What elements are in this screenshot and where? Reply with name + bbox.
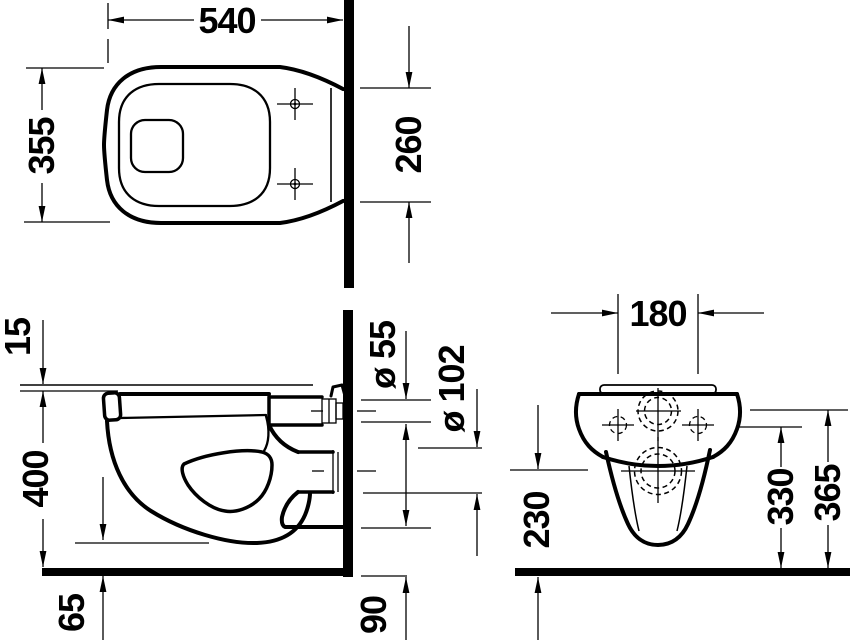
inlet-stub: [336, 403, 343, 419]
body-right-edge: [713, 394, 740, 457]
side-view: 15 400 65 ø 55 ø 102: [0, 310, 482, 640]
plan-view: 540 355 260: [21, 0, 431, 288]
outlet-arm-underside: [282, 492, 343, 527]
dim-inlet-diameter: ø 55: [361, 320, 431, 526]
dim-label: 365: [807, 463, 848, 521]
dim-fixing-hole-spacing: 180: [551, 293, 764, 374]
dim-bottom-clearance: 65: [51, 477, 209, 640]
dim-label: 400: [15, 450, 56, 507]
mounting-hole: [277, 88, 313, 120]
drain-opening: [131, 120, 183, 172]
dim-wall-width: 260: [360, 26, 431, 263]
dim-label: 355: [21, 116, 62, 174]
shroud-inner-line: [629, 466, 639, 531]
dim-label: 540: [198, 0, 255, 41]
dim-plan-depth: 355: [21, 68, 110, 222]
drawing-canvas: 540 355 260: [0, 0, 850, 640]
dim-label: 260: [388, 116, 429, 173]
bowl-outer-outline: [104, 67, 343, 223]
dim-outlet-bottom-height: 90: [353, 528, 431, 640]
technical-drawing: 540 355 260: [0, 0, 850, 640]
dim-fixing-hole-height: 330: [738, 427, 802, 568]
dim-rim-height: 400: [15, 391, 56, 567]
dim-plan-width: 540: [108, 0, 343, 63]
dim-seat-offset: 15: [0, 317, 43, 384]
wall-section: [343, 310, 353, 577]
shroud-inner-line: [677, 466, 687, 531]
mounting-hole: [277, 168, 313, 200]
dim-label: ø 102: [431, 345, 472, 432]
dim-label: 15: [0, 317, 38, 356]
wall-section: [344, 0, 354, 288]
dim-label: ø 55: [362, 320, 403, 389]
wall-bracket-tab: [331, 385, 345, 396]
dim-label: 65: [51, 593, 92, 632]
dim-label: 230: [516, 491, 557, 548]
front-view: 180 230 330 365: [510, 293, 850, 640]
body-left-edge: [576, 394, 603, 457]
trap-water-outline: [182, 451, 272, 512]
dim-label: 330: [760, 468, 801, 525]
dim-label: 90: [353, 596, 394, 634]
dim-label: 180: [629, 293, 686, 334]
bowl-back-outer: [269, 425, 298, 452]
rim-nose: [103, 392, 121, 420]
mounting-hole: [602, 409, 634, 441]
dim-outlet-center-height: 230: [510, 405, 588, 640]
bowl-rim-inner: [119, 84, 270, 206]
floor-line: [42, 568, 353, 576]
floor-line: [515, 568, 850, 576]
rim-inner-edge: [120, 415, 266, 418]
mounting-hole: [682, 409, 714, 441]
